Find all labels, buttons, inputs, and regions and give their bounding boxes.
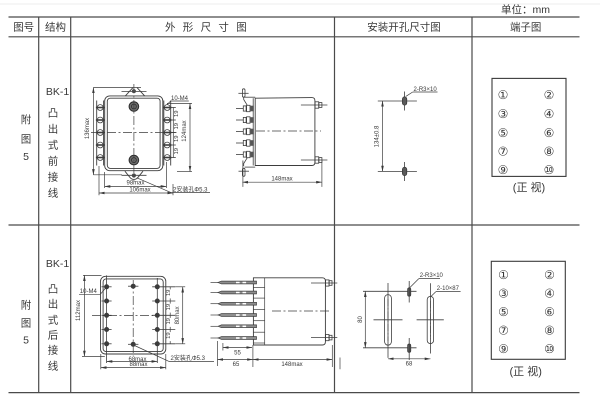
- svg-text:⑤: ⑤: [498, 305, 509, 319]
- svg-text:19: 19: [166, 332, 172, 338]
- svg-text:③: ③: [498, 107, 509, 121]
- svg-text:外形尺寸图: 外形尺寸图: [165, 21, 254, 34]
- svg-text:出: 出: [48, 298, 59, 311]
- svg-text:19: 19: [174, 111, 180, 117]
- svg-text:148max: 148max: [271, 176, 292, 182]
- svg-text:凸: 凸: [48, 284, 59, 296]
- svg-text:19: 19: [166, 304, 172, 310]
- svg-text:106max: 106max: [129, 187, 150, 193]
- svg-text:5: 5: [23, 151, 29, 163]
- svg-text:55: 55: [234, 350, 241, 356]
- svg-text:19: 19: [174, 148, 180, 154]
- svg-text:安装开孔尺寸图: 安装开孔尺寸图: [367, 21, 441, 34]
- svg-text:①: ①: [498, 88, 509, 102]
- svg-text:接: 接: [48, 344, 59, 357]
- svg-text:前: 前: [48, 155, 59, 168]
- svg-text:①: ①: [498, 268, 509, 282]
- svg-text:②: ②: [544, 88, 555, 102]
- svg-text:附: 附: [21, 299, 32, 312]
- svg-text:136max: 136max: [85, 118, 91, 139]
- svg-text:19: 19: [174, 136, 180, 142]
- svg-text:图: 图: [21, 318, 32, 330]
- svg-text:⑤: ⑤: [498, 126, 509, 140]
- svg-text:80: 80: [358, 316, 364, 323]
- svg-text:式: 式: [48, 314, 59, 327]
- svg-text:19: 19: [166, 290, 172, 296]
- svg-text:④: ④: [544, 107, 555, 121]
- svg-text:凸: 凸: [48, 108, 59, 120]
- svg-text:⑧: ⑧: [544, 324, 555, 338]
- svg-text:⑥: ⑥: [544, 126, 555, 140]
- svg-text:⑧: ⑧: [544, 145, 555, 159]
- svg-text:2-10×87: 2-10×87: [437, 286, 460, 292]
- svg-text:图号: 图号: [13, 22, 34, 34]
- svg-text:2安装孔Φ5.3: 2安装孔Φ5.3: [171, 354, 206, 362]
- svg-text:接: 接: [48, 171, 59, 184]
- svg-text:2安装孔Φ5.3: 2安装孔Φ5.3: [173, 185, 208, 193]
- svg-text:结构: 结构: [45, 21, 66, 34]
- svg-text:⑩: ⑩: [544, 342, 555, 356]
- svg-text:5: 5: [23, 335, 29, 347]
- svg-text:⑩: ⑩: [544, 163, 555, 177]
- svg-text:⑥: ⑥: [544, 305, 555, 319]
- svg-text:②: ②: [544, 268, 555, 282]
- svg-text:98max: 98max: [126, 181, 144, 187]
- svg-text:附: 附: [21, 113, 32, 126]
- svg-text:134±0.8: 134±0.8: [374, 125, 380, 147]
- svg-text:88max: 88max: [129, 362, 147, 368]
- svg-text:124max: 124max: [182, 120, 188, 141]
- svg-text:④: ④: [544, 287, 555, 301]
- svg-text:⑨: ⑨: [498, 163, 509, 177]
- svg-text:⑦: ⑦: [498, 145, 509, 159]
- svg-text:后: 后: [48, 330, 59, 342]
- svg-text:112max: 112max: [76, 300, 82, 321]
- svg-text:(正 视): (正 视): [510, 364, 542, 378]
- svg-text:19: 19: [174, 123, 180, 129]
- svg-text:线: 线: [48, 187, 59, 200]
- svg-text:端子图: 端子图: [510, 21, 542, 34]
- svg-text:③: ③: [498, 287, 509, 301]
- svg-text:⑦: ⑦: [498, 324, 509, 338]
- svg-text:单位：mm: 单位：mm: [501, 3, 550, 16]
- svg-text:65: 65: [233, 362, 240, 368]
- svg-text:148max: 148max: [281, 362, 302, 368]
- svg-text:(正 视): (正 视): [513, 180, 545, 194]
- svg-text:式: 式: [48, 139, 59, 152]
- svg-text:BK-1: BK-1: [46, 86, 70, 98]
- svg-text:BK-1: BK-1: [46, 258, 70, 270]
- svg-text:⑨: ⑨: [498, 342, 509, 356]
- svg-text:19: 19: [166, 318, 172, 324]
- svg-text:68: 68: [406, 362, 413, 368]
- svg-text:图: 图: [21, 134, 32, 146]
- svg-text:线: 线: [48, 360, 59, 373]
- svg-text:出: 出: [48, 123, 59, 136]
- svg-text:2-R3×10: 2-R3×10: [420, 273, 444, 279]
- svg-text:80max: 80max: [175, 306, 181, 324]
